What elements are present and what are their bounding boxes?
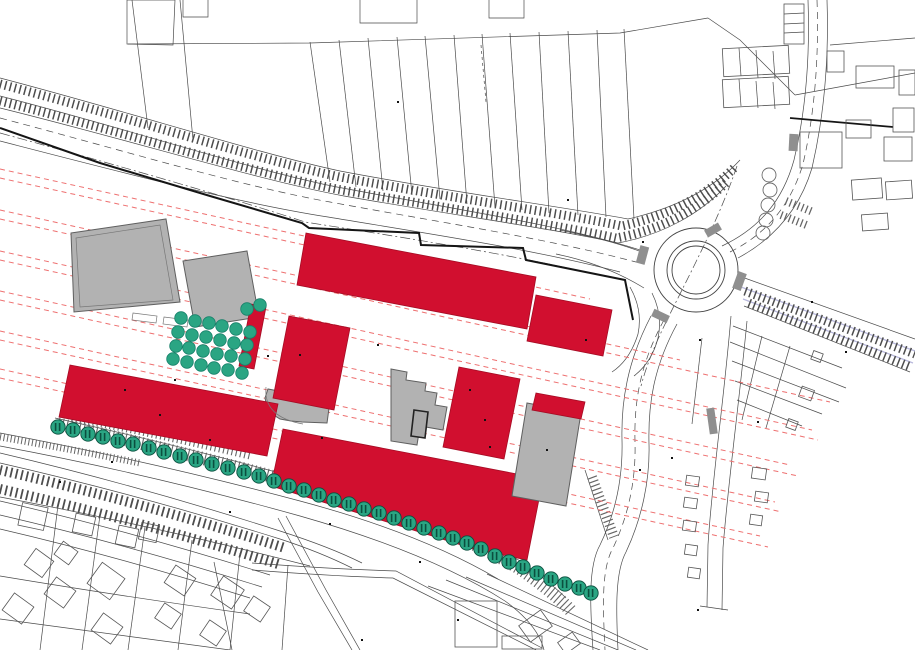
tree-grid-circle bbox=[175, 312, 188, 325]
tree-icon bbox=[488, 549, 502, 563]
base-linework-path bbox=[397, 37, 412, 195]
tree-icon bbox=[342, 497, 356, 511]
tree-icon bbox=[126, 437, 140, 451]
roundabout bbox=[654, 228, 738, 312]
tick-bands-path bbox=[745, 291, 915, 354]
tree-crown bbox=[142, 441, 156, 455]
base-linework-path bbox=[252, 563, 542, 648]
houses-rect bbox=[2, 593, 34, 624]
tree-grid-circle bbox=[230, 323, 243, 336]
tree-icon bbox=[252, 469, 266, 483]
base-linework-path bbox=[641, 166, 737, 386]
tree-grid-circle bbox=[225, 350, 238, 363]
base-linework-path bbox=[368, 38, 383, 191]
tree-icon bbox=[558, 577, 572, 591]
tree-icon bbox=[530, 566, 544, 580]
base-linework-path bbox=[556, 254, 644, 288]
site-plan-canvas bbox=[0, 0, 915, 650]
tick-bands-path bbox=[0, 101, 726, 238]
tree-crown bbox=[297, 483, 311, 497]
tree-icon bbox=[417, 521, 431, 535]
survey-dot bbox=[845, 351, 847, 353]
base-linework-path bbox=[180, 0, 193, 140]
tree-icon bbox=[357, 502, 371, 516]
tree-crown bbox=[488, 549, 502, 563]
survey-dot bbox=[299, 354, 301, 356]
houses-rect bbox=[687, 567, 700, 579]
tree-icon bbox=[544, 572, 558, 586]
base-linework-path bbox=[0, 529, 250, 598]
houses-rect bbox=[211, 576, 245, 609]
tree-grid-circle bbox=[208, 362, 221, 375]
base-linework-path bbox=[360, 0, 417, 23]
base-linework-path bbox=[310, 42, 330, 182]
tick-bands-path bbox=[592, 477, 614, 537]
houses-rect bbox=[54, 541, 78, 565]
houses-rect bbox=[683, 497, 697, 509]
building-details-path bbox=[132, 313, 157, 323]
tree-icon bbox=[402, 516, 416, 530]
base-linework-path bbox=[489, 0, 524, 18]
survey-dot bbox=[361, 639, 363, 641]
tree-grid-circle bbox=[183, 342, 196, 355]
tree-icon bbox=[327, 493, 341, 507]
base-linework-path bbox=[282, 565, 288, 650]
tree-crown bbox=[51, 420, 65, 434]
tree-grid-circle bbox=[211, 348, 224, 361]
base-linework-path bbox=[624, 29, 634, 219]
base-linework-path bbox=[795, 73, 915, 95]
survey-dot bbox=[585, 339, 587, 341]
tree-crown bbox=[417, 521, 431, 535]
tree-crown bbox=[402, 516, 416, 530]
tree-icon bbox=[173, 449, 187, 463]
tree-crown bbox=[173, 449, 187, 463]
tree-crown bbox=[387, 511, 401, 525]
survey-dot bbox=[489, 446, 491, 448]
tree-icon bbox=[432, 526, 446, 540]
tree-grid-circle bbox=[181, 356, 194, 369]
base-linework-path bbox=[568, 31, 578, 215]
tree-grid-circle bbox=[186, 329, 199, 342]
gray-building-4 bbox=[512, 403, 581, 506]
tree-crown bbox=[312, 488, 326, 502]
base-linework-path bbox=[830, 38, 915, 45]
base-linework-path bbox=[591, 316, 651, 650]
tree-icon bbox=[502, 555, 516, 569]
tree-crown bbox=[372, 506, 386, 520]
survey-dot bbox=[699, 339, 701, 341]
tree-grid-circle bbox=[241, 339, 254, 352]
tick-bands-path bbox=[749, 303, 911, 367]
site-boundary-path bbox=[790, 118, 893, 127]
survey-dot bbox=[377, 344, 379, 346]
tree-grid-circle bbox=[241, 303, 254, 316]
tree-icon bbox=[516, 560, 530, 574]
tree-crown bbox=[282, 479, 296, 493]
tree-crown bbox=[66, 423, 80, 437]
houses-rect bbox=[851, 178, 882, 200]
tick-bands-path bbox=[781, 215, 809, 226]
survey-dot bbox=[59, 481, 61, 483]
tree-grid-circle bbox=[197, 345, 210, 358]
tree-crown bbox=[432, 526, 446, 540]
base-linework-path bbox=[784, 13, 804, 14]
base-linework-path bbox=[482, 34, 495, 207]
base-linework-path bbox=[278, 518, 352, 650]
survey-dot bbox=[174, 379, 176, 381]
crossings-rect bbox=[636, 245, 649, 265]
tree-outline-row-circle bbox=[763, 183, 777, 197]
tree-outline-row-circle bbox=[762, 168, 776, 182]
tree-crown bbox=[252, 469, 266, 483]
tree-icon bbox=[111, 434, 125, 448]
houses-rect bbox=[18, 503, 48, 531]
base-linework-path bbox=[766, 346, 790, 428]
houses-rect bbox=[558, 632, 581, 650]
tree-icon bbox=[446, 531, 460, 545]
base-linework-path bbox=[784, 23, 804, 24]
survey-dot bbox=[124, 389, 126, 391]
houses-rect bbox=[749, 514, 762, 526]
tree-grid-circle bbox=[203, 317, 216, 330]
crossings-rect bbox=[651, 309, 670, 323]
base-linework-path bbox=[510, 33, 522, 210]
tick-bands-path bbox=[0, 470, 285, 548]
tree-icon bbox=[387, 511, 401, 525]
tree-crown bbox=[205, 457, 219, 471]
base-linework-path bbox=[597, 30, 606, 217]
crossings-rect bbox=[706, 408, 718, 435]
survey-dot bbox=[639, 469, 641, 471]
tree-icon bbox=[460, 536, 474, 550]
tree-crown bbox=[327, 493, 341, 507]
tree-grid-circle bbox=[239, 353, 252, 366]
site-plan-svg bbox=[0, 0, 915, 650]
tree-crown bbox=[530, 566, 544, 580]
tree-grid-circle bbox=[216, 320, 229, 333]
tree-crown bbox=[342, 497, 356, 511]
tree-icon bbox=[372, 506, 386, 520]
tree-crown bbox=[544, 572, 558, 586]
tree-crown bbox=[558, 577, 572, 591]
tree-crown bbox=[357, 502, 371, 516]
base-linework-path bbox=[708, 18, 795, 95]
tree-icon bbox=[474, 542, 488, 556]
tree-grid-circle bbox=[254, 299, 267, 312]
base-linework-path bbox=[733, 326, 842, 368]
tree-outline-row-circle bbox=[759, 213, 773, 227]
base-linework-path bbox=[756, 50, 758, 78]
roundabout-circle bbox=[667, 241, 725, 299]
tree-crown bbox=[81, 427, 95, 441]
tree-icon bbox=[221, 461, 235, 475]
tree-grid-circle bbox=[236, 367, 249, 380]
tree-icon bbox=[205, 457, 219, 471]
tree-grid-circle bbox=[214, 334, 227, 347]
tree-icon bbox=[81, 427, 95, 441]
base-linework-path bbox=[0, 619, 230, 650]
tree-icon bbox=[96, 430, 110, 444]
gray-building-1 bbox=[71, 219, 180, 312]
tree-crown bbox=[96, 430, 110, 444]
base-linework bbox=[0, 0, 915, 650]
houses-rect bbox=[884, 137, 912, 161]
survey-dot bbox=[267, 355, 269, 357]
base-linework-path bbox=[127, 0, 175, 45]
tree-icon bbox=[282, 479, 296, 493]
tree-icon bbox=[142, 441, 156, 455]
base-linework-path bbox=[0, 78, 740, 219]
survey-dot bbox=[321, 437, 323, 439]
base-linework-path bbox=[700, 606, 728, 610]
survey-dot bbox=[697, 609, 699, 611]
base-linework-path bbox=[454, 35, 467, 204]
tick-bands-path bbox=[0, 84, 734, 226]
base-linework-path bbox=[741, 287, 915, 351]
houses-rect bbox=[885, 180, 912, 200]
survey-dot bbox=[419, 561, 421, 563]
tree-grid-circle bbox=[167, 353, 180, 366]
tree-outline-row-circle bbox=[756, 226, 770, 240]
tree-crown bbox=[189, 453, 203, 467]
tree-crown bbox=[157, 445, 171, 459]
tree-icon bbox=[66, 423, 80, 437]
survey-dot bbox=[484, 419, 486, 421]
tree-icon bbox=[189, 453, 203, 467]
tree-grid-circle bbox=[170, 340, 183, 353]
tree-crown bbox=[474, 542, 488, 556]
tree-crown bbox=[111, 434, 125, 448]
survey-dot bbox=[229, 511, 231, 513]
houses-rect bbox=[115, 525, 139, 548]
houses-rect bbox=[200, 620, 227, 646]
base-linework-path bbox=[286, 516, 360, 650]
base-linework-path bbox=[692, 338, 702, 424]
tree-icon bbox=[584, 586, 598, 600]
survey-dot bbox=[469, 389, 471, 391]
survey-dot bbox=[546, 449, 548, 451]
substation-block bbox=[411, 410, 428, 438]
tree-icon bbox=[237, 465, 251, 479]
houses-rect bbox=[164, 565, 196, 596]
base-linework-path bbox=[784, 32, 804, 33]
base-linework-path bbox=[739, 48, 741, 76]
tick-bands-path bbox=[786, 201, 813, 212]
tree-grid-circle bbox=[228, 337, 241, 350]
base-linework-path bbox=[739, 79, 741, 106]
houses-rect bbox=[44, 577, 76, 608]
tree-crown bbox=[502, 555, 516, 569]
survey-dot bbox=[457, 619, 459, 621]
tree-crown bbox=[584, 586, 598, 600]
tree-icon bbox=[51, 420, 65, 434]
tree-icon bbox=[297, 483, 311, 497]
base-linework-path bbox=[756, 81, 758, 108]
base-linework-path bbox=[132, 0, 148, 128]
houses-rect bbox=[799, 386, 815, 401]
houses-rect bbox=[827, 51, 844, 72]
tree-crown bbox=[516, 560, 530, 574]
tree-icon bbox=[157, 445, 171, 459]
houses-rect bbox=[72, 513, 96, 536]
tree-grid-circle bbox=[200, 331, 213, 344]
base-linework-path bbox=[539, 32, 549, 213]
tree-grid-circle bbox=[172, 326, 185, 339]
survey-dot bbox=[209, 439, 211, 441]
houses bbox=[2, 4, 915, 650]
base-linework-path bbox=[183, 0, 208, 17]
houses-rect bbox=[455, 601, 497, 647]
base-linework-path bbox=[128, 18, 708, 44]
tree-crown bbox=[460, 536, 474, 550]
tree-crown bbox=[126, 437, 140, 451]
tree-grid-circle bbox=[222, 364, 235, 377]
tree-grid-circle bbox=[195, 359, 208, 372]
tree-crown bbox=[267, 474, 281, 488]
base-linework-path bbox=[0, 576, 250, 614]
base-linework-path bbox=[617, 324, 677, 650]
base-linework-path bbox=[738, 0, 827, 258]
houses-rect bbox=[91, 613, 123, 644]
houses-rect bbox=[244, 596, 271, 622]
base-linework-path bbox=[742, 336, 762, 420]
base-linework-path bbox=[428, 586, 600, 650]
survey-dot bbox=[111, 461, 113, 463]
tree-crown bbox=[221, 461, 235, 475]
houses-rect bbox=[155, 603, 182, 629]
survey-dot bbox=[811, 301, 813, 303]
base-linework-path bbox=[128, 527, 145, 650]
base-linework-path bbox=[425, 36, 440, 199]
tree-crown bbox=[446, 531, 460, 545]
tree-icon bbox=[267, 474, 281, 488]
base-linework-path bbox=[722, 321, 747, 610]
houses-rect bbox=[751, 467, 766, 480]
survey-dot bbox=[329, 523, 331, 525]
base-linework-path bbox=[230, 553, 240, 650]
tree-icon bbox=[312, 488, 326, 502]
houses-rect bbox=[684, 544, 697, 556]
survey-dot bbox=[567, 199, 569, 201]
houses-rect bbox=[856, 66, 894, 88]
base-linework-path bbox=[339, 40, 356, 187]
tree-crown bbox=[237, 465, 251, 479]
survey-dot bbox=[397, 101, 399, 103]
red-building-6 bbox=[443, 367, 520, 459]
crossings-rect bbox=[789, 134, 799, 151]
survey-dot bbox=[757, 421, 759, 423]
base-linework-path bbox=[707, 316, 731, 607]
base-linework-path bbox=[737, 400, 802, 426]
base-linework-path bbox=[466, 577, 636, 650]
houses-rect bbox=[754, 491, 768, 503]
tree-grid-circle bbox=[244, 326, 257, 339]
tree-grid-circle bbox=[189, 315, 202, 328]
survey-dot bbox=[159, 414, 161, 416]
survey-dot bbox=[671, 457, 673, 459]
red-building-2 bbox=[273, 316, 350, 410]
survey-dot bbox=[642, 241, 644, 243]
houses-rect bbox=[893, 108, 914, 132]
houses-rect bbox=[861, 213, 888, 231]
red-building-1-east bbox=[527, 295, 612, 356]
base-linework-path bbox=[603, 320, 664, 650]
roundabout-circle bbox=[672, 246, 720, 294]
base-linework-path bbox=[730, 342, 846, 388]
survey-dots bbox=[59, 101, 847, 641]
